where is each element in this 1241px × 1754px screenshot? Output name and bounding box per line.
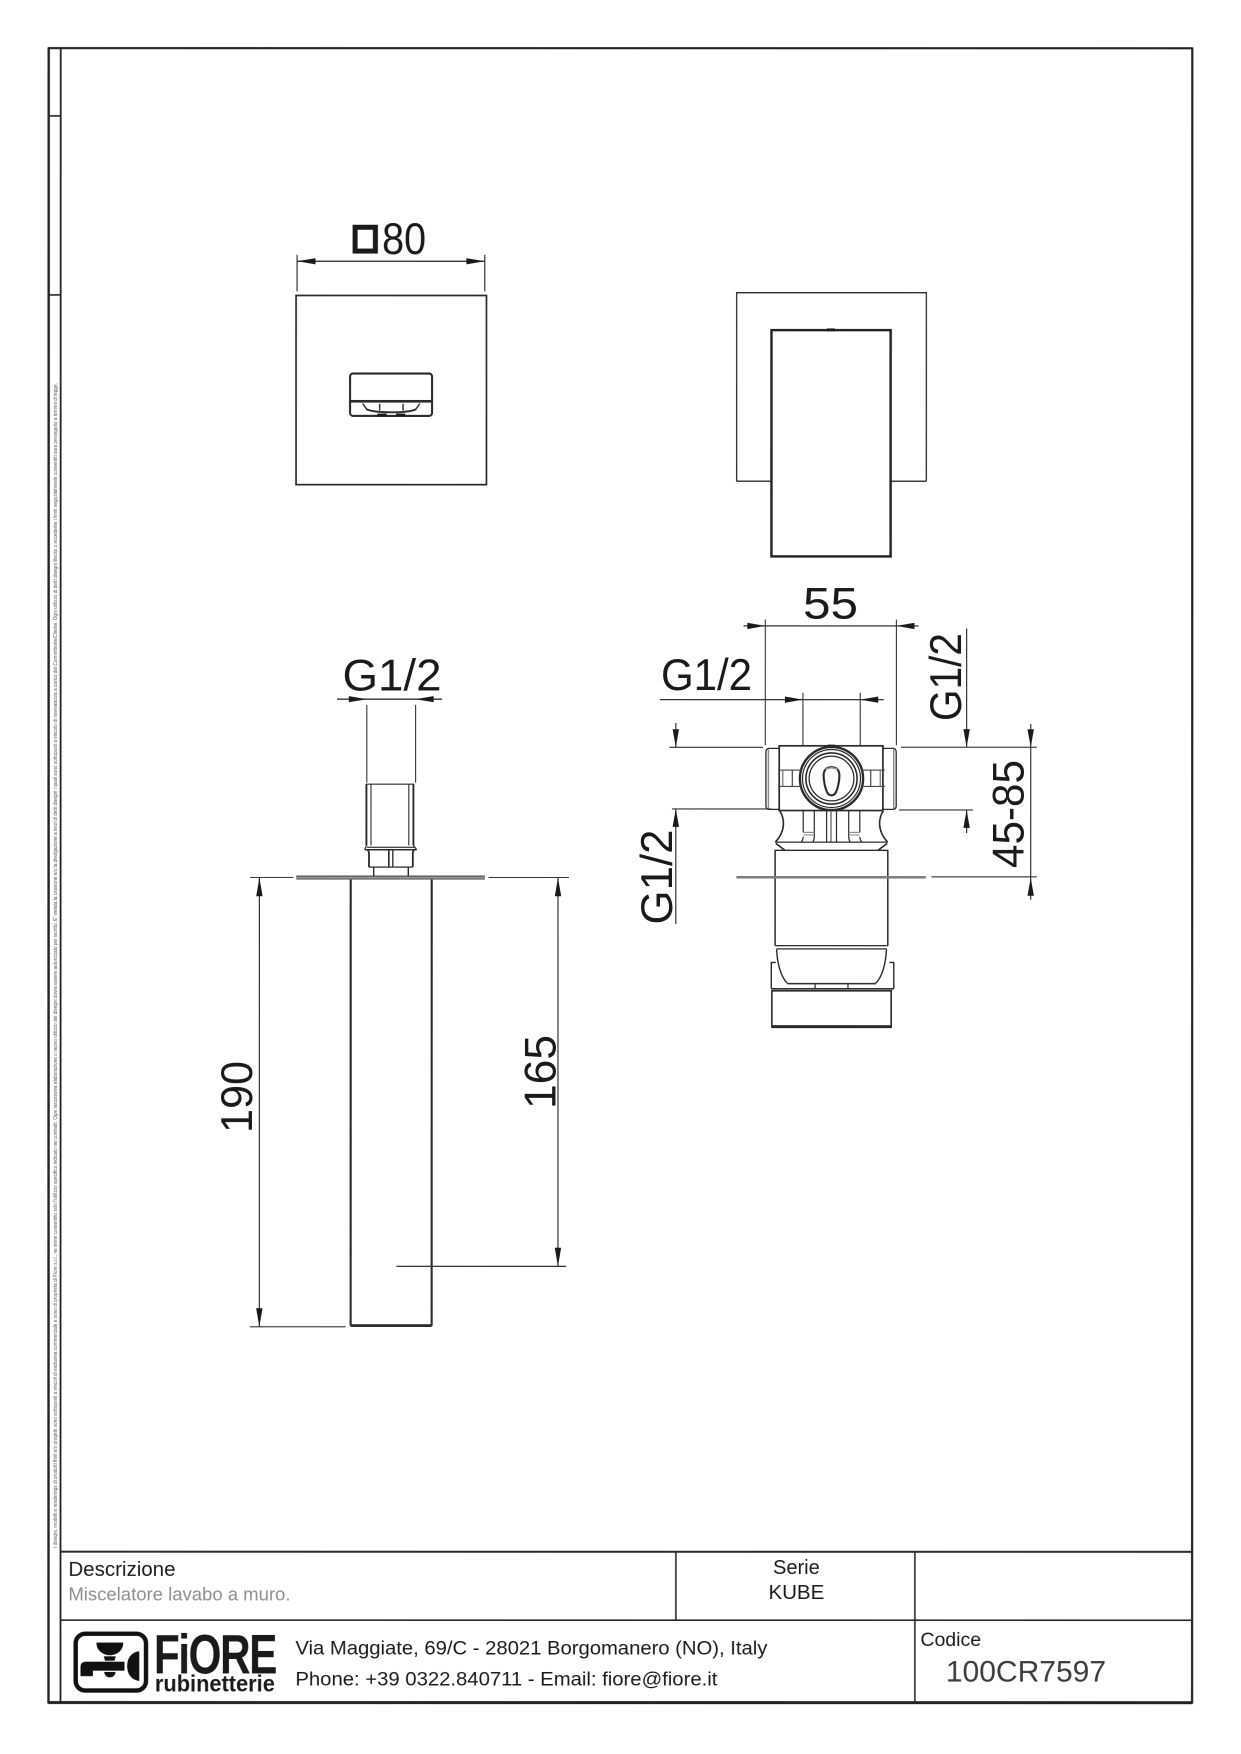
- svg-text:165: 165: [516, 1035, 565, 1109]
- svg-text:80: 80: [382, 215, 426, 264]
- svg-text:Codice: Codice: [920, 1629, 981, 1651]
- svg-text:Miscelatore lavabo a muro.: Miscelatore lavabo a muro.: [68, 1583, 290, 1604]
- svg-text:KUBE: KUBE: [768, 1581, 824, 1604]
- svg-text:55: 55: [803, 579, 858, 628]
- svg-text:G1/2: G1/2: [633, 830, 682, 925]
- svg-text:Descrizione: Descrizione: [68, 1558, 175, 1581]
- svg-text:45-85: 45-85: [985, 760, 1034, 868]
- svg-text:G1/2: G1/2: [661, 651, 752, 700]
- svg-text:100CR7597: 100CR7597: [946, 1656, 1106, 1689]
- svg-text:rubinetterie: rubinetterie: [155, 1670, 275, 1696]
- svg-text:Phone: +39 0322.840711 - Email: Phone: +39 0322.840711 - Email: fiore@fi…: [295, 1669, 718, 1690]
- svg-text:G1/2: G1/2: [922, 633, 971, 721]
- svg-text:Serie: Serie: [773, 1557, 820, 1579]
- svg-text:I disegni, modelli e rendering: I disegni, modelli e renderings di prodo…: [53, 383, 59, 1548]
- svg-text:190: 190: [213, 1061, 262, 1133]
- svg-text:Via Maggiate, 69/C - 28021 Bor: Via Maggiate, 69/C - 28021 Borgomanero (…: [295, 1638, 768, 1659]
- svg-text:G1/2: G1/2: [343, 651, 442, 700]
